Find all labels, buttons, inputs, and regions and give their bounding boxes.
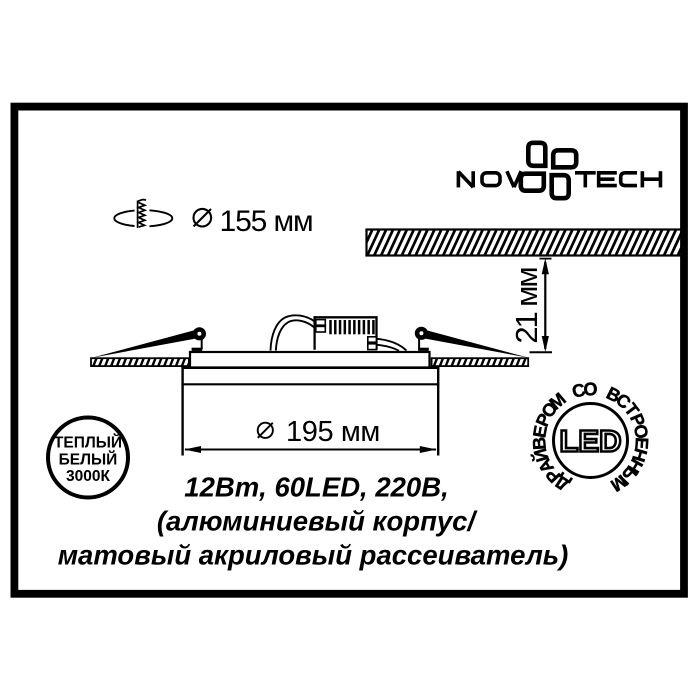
svg-text:21 мм: 21 мм [509, 268, 544, 344]
svg-text:(алюминиевый корпус/: (алюминиевый корпус/ [157, 506, 479, 537]
svg-text:БЕЛЫЙ: БЕЛЫЙ [59, 450, 118, 468]
svg-text:155 мм: 155 мм [220, 205, 313, 238]
svg-text:12Bm, 60LED, 220B,: 12Bm, 60LED, 220B, [184, 472, 448, 503]
svg-text:ТЕПЛЫЙ: ТЕПЛЫЙ [54, 434, 122, 452]
svg-text:О: О [583, 379, 597, 399]
svg-text:3000К: 3000К [66, 468, 110, 485]
svg-text:LED: LED [560, 424, 622, 459]
svg-text:195 мм: 195 мм [286, 416, 380, 448]
svg-text:матовый акриловый рассеиватель: матовый акриловый рассеиватель) [58, 540, 569, 571]
